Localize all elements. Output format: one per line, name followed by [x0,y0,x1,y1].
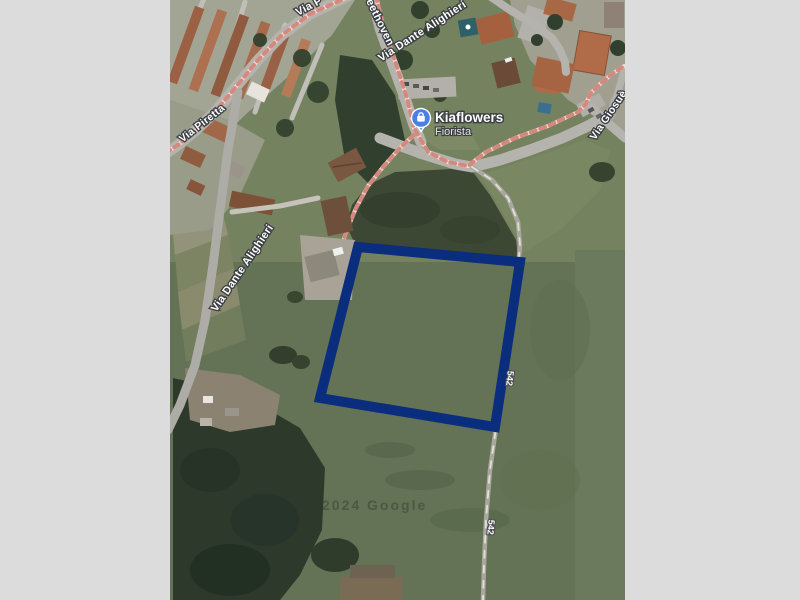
map-graphic: Via P eethoven Via Dante Alighieri Via P… [170,0,625,600]
poi-name: Kiaflowers [435,110,503,125]
bag-body [417,116,425,122]
listing-image-canvas: Via P eethoven Via Dante Alighieri Via P… [0,0,800,600]
route-label-542-bottom: 542 [485,519,496,535]
route-label-542-mid: 542 [504,370,516,386]
satellite-map[interactable]: Via P eethoven Via Dante Alighieri Via P… [170,0,625,600]
poi-category: Fiorista [435,126,472,138]
google-watermark: 2024 Google [322,497,427,513]
